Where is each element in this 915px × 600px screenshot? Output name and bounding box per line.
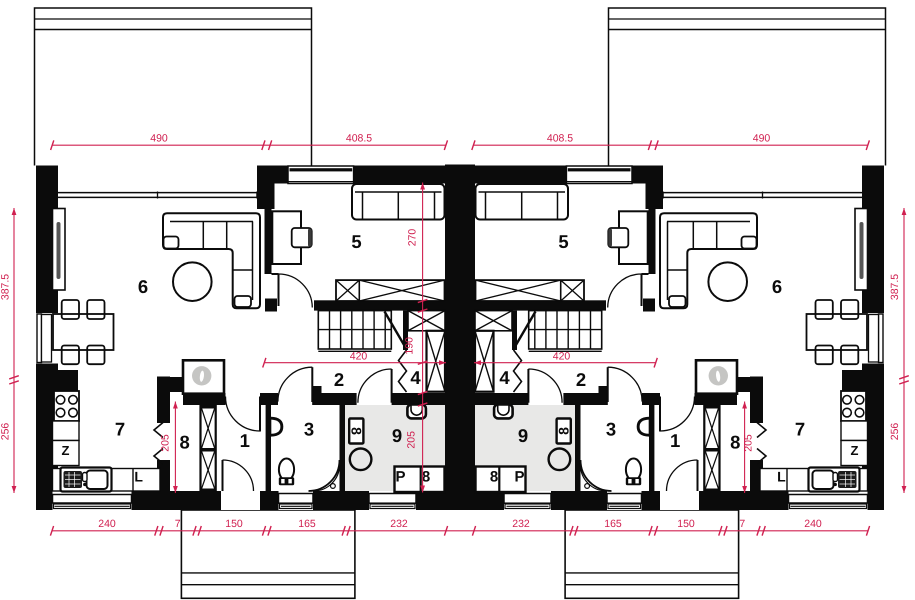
svg-text:3: 3	[304, 419, 314, 440]
svg-text:408.5: 408.5	[547, 133, 573, 145]
svg-text:Z: Z	[62, 443, 70, 458]
svg-text:420: 420	[350, 350, 368, 362]
svg-text:L: L	[777, 469, 786, 485]
svg-text:408.5: 408.5	[346, 133, 372, 145]
svg-text:8: 8	[556, 427, 572, 435]
svg-text:205: 205	[406, 431, 418, 449]
svg-text:270: 270	[407, 229, 419, 247]
svg-text:4: 4	[499, 367, 510, 388]
svg-text:2: 2	[334, 369, 344, 390]
svg-text:232: 232	[512, 518, 530, 530]
svg-text:256: 256	[889, 423, 901, 441]
svg-text:7: 7	[795, 419, 805, 440]
svg-text:490: 490	[753, 133, 771, 145]
svg-text:150: 150	[225, 518, 243, 530]
svg-text:Z: Z	[851, 443, 859, 458]
svg-text:205: 205	[743, 434, 755, 452]
svg-text:8: 8	[490, 469, 498, 486]
svg-text:L: L	[134, 469, 143, 485]
svg-text:205: 205	[160, 434, 172, 452]
svg-text:6: 6	[138, 276, 148, 297]
svg-text:P: P	[395, 469, 405, 486]
svg-text:P: P	[514, 469, 524, 486]
svg-text:9: 9	[518, 425, 528, 446]
svg-text:8: 8	[348, 427, 364, 435]
svg-text:1: 1	[670, 430, 680, 451]
svg-text:232: 232	[390, 518, 408, 530]
svg-text:8: 8	[730, 432, 740, 453]
svg-text:420: 420	[553, 350, 571, 362]
svg-text:8: 8	[180, 432, 190, 453]
svg-text:7: 7	[175, 518, 181, 530]
svg-text:387.5: 387.5	[0, 274, 12, 300]
svg-text:387.5: 387.5	[889, 274, 901, 300]
svg-text:256: 256	[0, 423, 12, 441]
svg-text:4: 4	[410, 367, 421, 388]
svg-text:5: 5	[558, 231, 568, 252]
svg-text:490: 490	[150, 133, 168, 145]
svg-text:7: 7	[115, 419, 125, 440]
svg-text:165: 165	[604, 518, 622, 530]
svg-text:190: 190	[404, 337, 416, 355]
svg-text:7: 7	[739, 518, 745, 530]
svg-text:6: 6	[772, 276, 782, 297]
svg-text:240: 240	[804, 518, 822, 530]
svg-text:5: 5	[351, 231, 361, 252]
svg-text:1: 1	[240, 430, 250, 451]
svg-text:165: 165	[298, 518, 316, 530]
svg-text:240: 240	[98, 518, 116, 530]
svg-text:9: 9	[392, 425, 402, 446]
svg-text:150: 150	[677, 518, 695, 530]
svg-text:2: 2	[576, 369, 586, 390]
svg-text:3: 3	[606, 419, 616, 440]
